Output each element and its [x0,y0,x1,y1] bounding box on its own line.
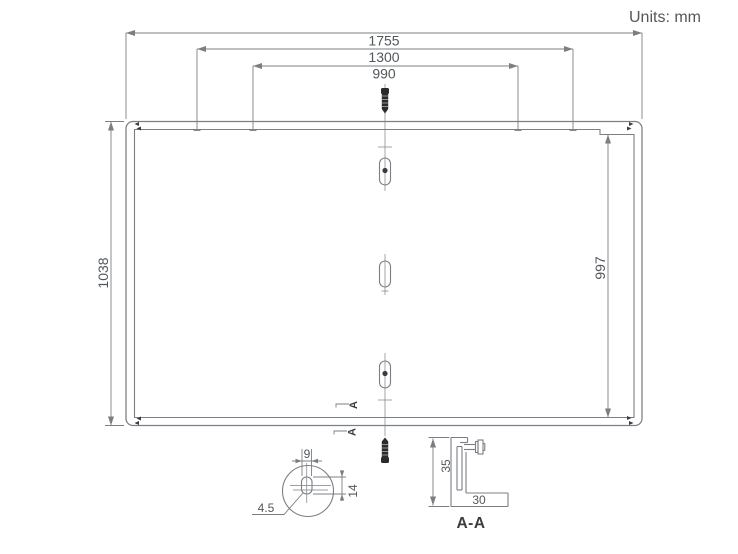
slot-hole-top [382,168,387,173]
panel-outer-frame [126,122,642,426]
section-view-aa: 35 30 A-A [429,438,509,533]
dim-height-inner-label: 997 [592,256,608,280]
dim-width-outer-label: 1755 [368,33,399,49]
dim-frame-height: 35 [429,438,454,507]
grounding-screw-bottom [381,438,389,464]
slot-hole-bottom [382,371,387,376]
dim-frame-height-label: 35 [439,459,453,473]
section-cut-markers: A A [334,401,360,436]
slot-detail-view: 9 14 4.5 [252,447,360,517]
cut-marker-upper-label: A [348,401,360,409]
dim-width-middle-label: 1300 [368,49,399,65]
section-view-title: A-A [456,515,485,532]
detail-circle [283,466,334,517]
panel-dimension-drawing: Units: mm 1755 1300 990 [0,0,738,554]
units-label: Units: mm [629,9,701,26]
mounting-features-center [378,84,392,463]
dim-slot-height-label: 14 [346,484,360,498]
dim-height-outer: 1038 [95,122,124,426]
dim-height-inner: 997 [592,135,608,418]
dim-height-outer-label: 1038 [95,257,111,288]
dim-width-inner-label: 990 [372,66,396,82]
grounding-screw-top [381,84,389,156]
dim-slot-radius-label: 4.5 [258,501,275,515]
mounting-slot-bottom [380,353,391,436]
frame-corner-marks [135,122,634,425]
mounting-slot-middle [380,254,391,295]
mounting-slot-top [380,156,391,191]
panel-outline [126,122,642,426]
dim-slot-radius: 4.5 [252,493,303,515]
drawing-svg: Units: mm 1755 1300 990 [0,0,738,554]
cut-marker-lower-label: A [347,428,359,436]
dim-frame-base-label: 30 [472,493,486,507]
dim-slot-width-label: 9 [304,447,311,461]
cut-line-lower [334,431,347,435]
